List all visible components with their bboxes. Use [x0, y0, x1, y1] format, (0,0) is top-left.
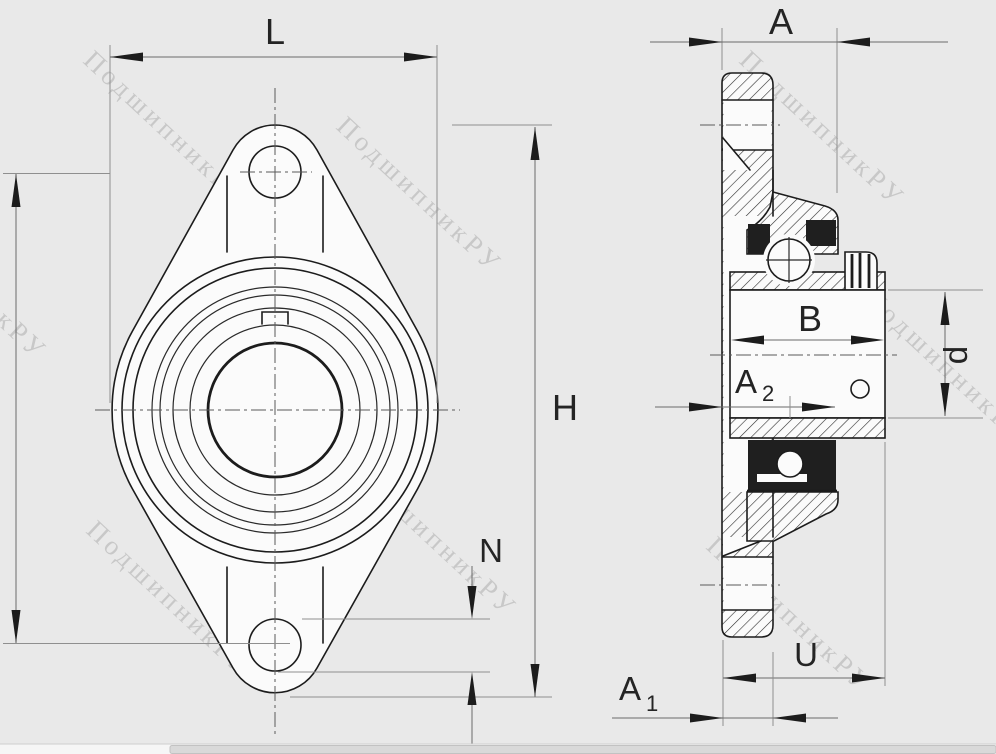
dim-label-B: B — [798, 298, 822, 339]
dim-label-A2: A — [735, 363, 757, 400]
dim-label-A2-sub: 2 — [762, 381, 774, 406]
dim-label-H: H — [552, 387, 578, 428]
dim-label-A1-sub: 1 — [646, 691, 658, 716]
lower-ball — [777, 451, 803, 477]
scrollbar-thumb[interactable] — [170, 746, 996, 754]
drawing-canvas: ПодшипникРУ ПодшипникРУ ПодшипникРУ Подш… — [0, 0, 996, 754]
dim-label-L: L — [265, 11, 285, 52]
dim-label-U: U — [794, 636, 818, 673]
seal-right — [806, 220, 836, 246]
dim-label-A1: A — [619, 670, 641, 707]
dim-label-d: d — [937, 346, 974, 364]
dim-label-A: A — [769, 1, 793, 42]
bearing-unit-drawing: ПодшипникРУ ПодшипникРУ ПодшипникРУ Подш… — [0, 0, 996, 754]
scrollbar[interactable] — [0, 744, 996, 754]
inner-ring-bottom-band — [730, 418, 885, 438]
dim-label-N: N — [479, 532, 503, 569]
lower-bolt-slot — [724, 557, 772, 610]
